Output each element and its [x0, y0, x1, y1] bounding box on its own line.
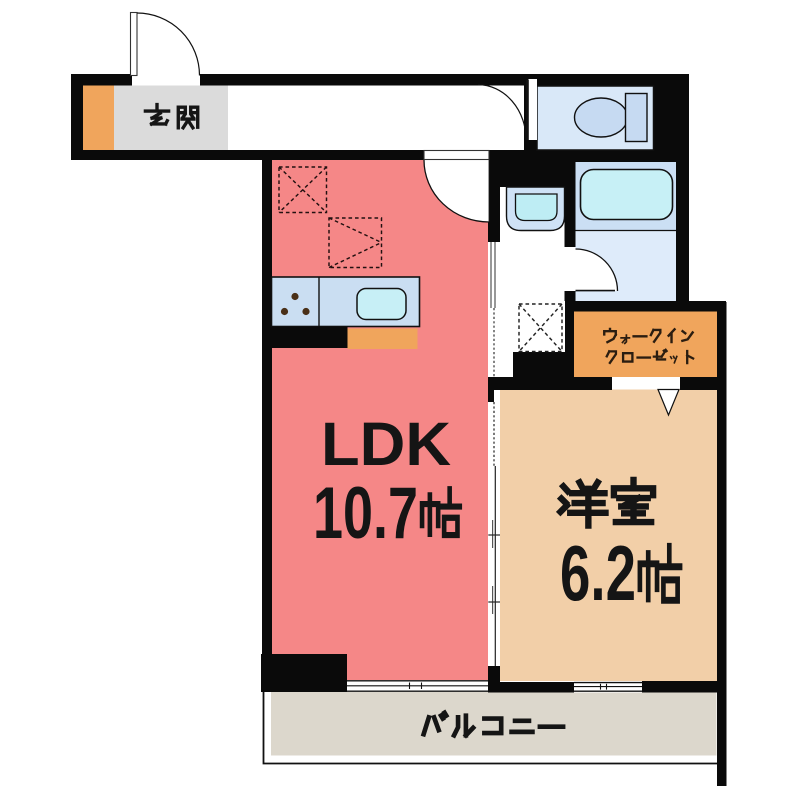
- svg-text:6.2: 6.2: [560, 529, 636, 617]
- svg-text:LDK: LDK: [321, 410, 451, 478]
- svg-text:10.7: 10.7: [313, 473, 418, 554]
